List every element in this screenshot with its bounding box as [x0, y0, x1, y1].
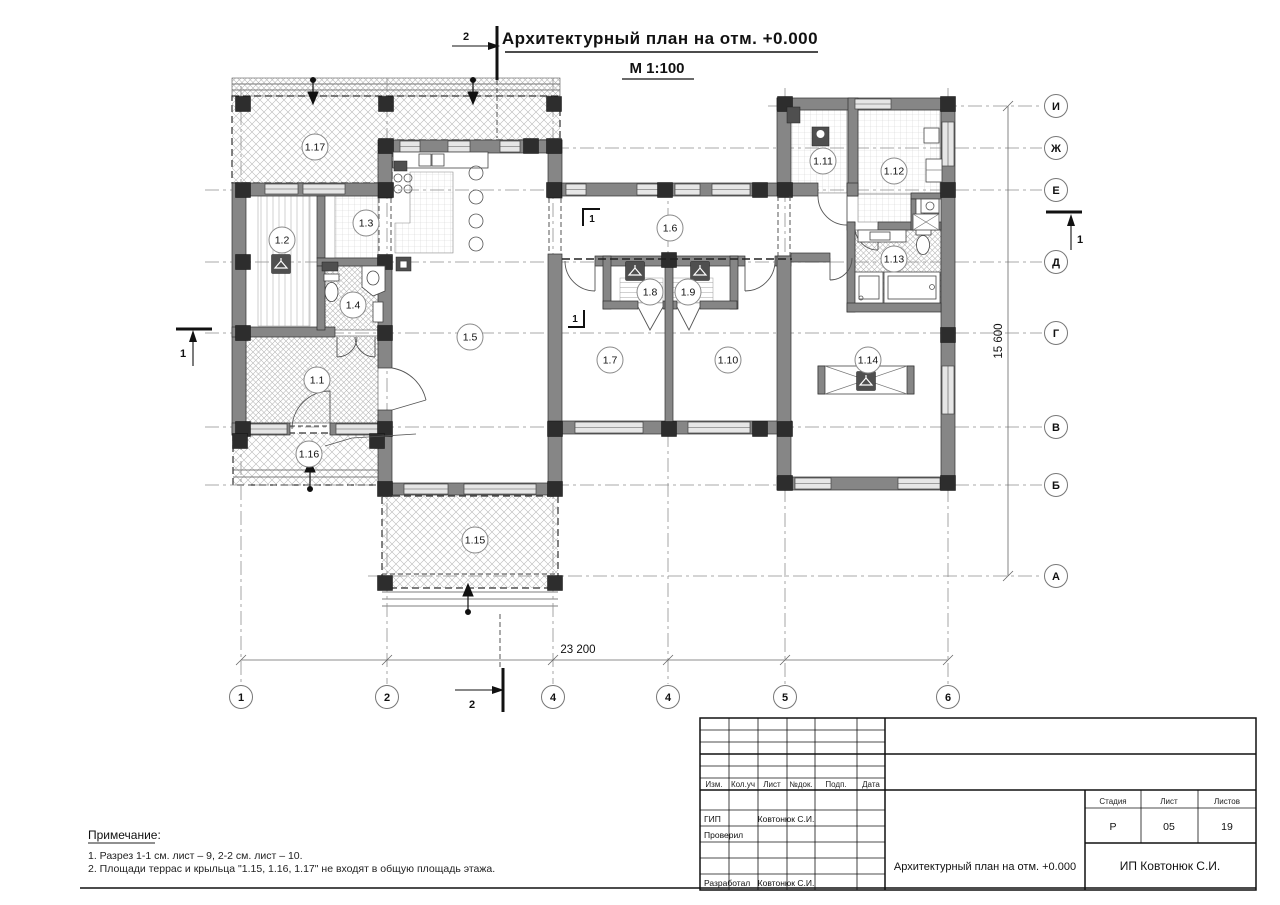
wall — [848, 98, 858, 196]
tb-doc-title: Архитектурный план на отм. +0.000 — [894, 861, 1076, 873]
column — [547, 183, 562, 198]
svg-text:1.11: 1.11 — [813, 156, 833, 168]
tb-name-razrabotal: Ковтонюк С.И. — [758, 878, 815, 888]
fixture — [469, 190, 483, 204]
note-2: 2. Площади террас и крыльца "1.15, 1.16,… — [88, 863, 495, 875]
column — [233, 434, 248, 449]
fixture — [373, 302, 383, 322]
svg-text:1.9: 1.9 — [681, 287, 696, 299]
fixture — [419, 154, 431, 166]
fixture — [924, 128, 939, 143]
title-block: Изм. Кол.уч Лист №док. Подп. Дата ГИП Ко… — [700, 718, 1256, 890]
fixture — [469, 214, 483, 228]
fixture — [926, 159, 942, 182]
wall — [847, 303, 941, 312]
hanger-icon — [857, 372, 876, 391]
notes-heading: Примечание: — [88, 828, 161, 842]
toilet-icon — [367, 271, 379, 285]
column — [548, 422, 563, 437]
svg-text:1.16: 1.16 — [299, 449, 320, 461]
fixture — [818, 366, 825, 394]
folding-door-1-8 — [638, 307, 663, 330]
column — [548, 576, 563, 591]
tb-stage-label: Стадия — [1099, 797, 1126, 806]
fixture — [400, 261, 407, 268]
svg-text:1.4: 1.4 — [346, 300, 361, 312]
column — [662, 253, 677, 268]
tb-col-koluch: Кол.уч — [731, 780, 755, 789]
wall — [791, 253, 830, 262]
svg-text:1.14: 1.14 — [858, 355, 879, 367]
hanger-icon — [691, 262, 710, 281]
tb-stage-value: Р — [1109, 821, 1116, 833]
room-1-12-floor-lower — [858, 194, 911, 222]
column — [753, 183, 768, 198]
fixture — [324, 274, 339, 281]
svg-text:И: И — [1052, 101, 1060, 113]
wall — [792, 183, 818, 196]
fixture — [870, 232, 890, 240]
column — [662, 422, 677, 437]
svg-text:1.7: 1.7 — [603, 355, 618, 367]
overall-height-dim: 15 600 — [993, 323, 1005, 358]
fixture — [859, 276, 879, 299]
hanger-icon — [272, 255, 291, 274]
wall — [847, 183, 858, 196]
overall-width-dim: 23 200 — [560, 644, 595, 656]
column — [778, 183, 793, 198]
section-1-jog-b: 1 — [572, 314, 578, 325]
column — [548, 482, 563, 497]
column — [941, 328, 956, 343]
fixture — [322, 262, 338, 271]
wall — [665, 256, 673, 434]
svg-text:Б: Б — [1052, 480, 1060, 492]
wall — [232, 183, 246, 435]
drawing-title: Архитектурный план на отм. +0.000 М 1:10… — [502, 29, 818, 79]
section-1-label-left: 1 — [180, 348, 186, 360]
column — [236, 97, 251, 112]
scale-label: М 1:100 — [629, 60, 684, 77]
floor-plan-svg: 2 2 1 1 1 1 23 200 15 600 ИЖЕДГВБА124456… — [0, 0, 1280, 905]
title-block-header-row: Изм. Кол.уч Лист №док. Подп. Дата — [705, 780, 880, 789]
column — [379, 139, 394, 154]
svg-text:Д: Д — [1052, 257, 1060, 269]
note-1: 1. Разрез 1-1 см. лист – 9, 2-2 см. лист… — [88, 850, 303, 862]
fixture — [394, 174, 402, 182]
svg-text:1.15: 1.15 — [465, 535, 486, 547]
fixture — [787, 107, 800, 123]
fixture — [921, 199, 939, 213]
tb-col-izm: Изм. — [705, 780, 722, 789]
svg-text:Ж: Ж — [1050, 143, 1061, 155]
tb-company: ИП Ковтонюк С.И. — [1120, 859, 1221, 873]
column — [378, 576, 393, 591]
column — [778, 422, 793, 437]
svg-text:1: 1 — [238, 692, 244, 704]
fixture — [394, 161, 407, 171]
tb-sheets-label: Листов — [1214, 797, 1240, 806]
page-title: Архитектурный план на отм. +0.000 — [502, 29, 818, 48]
column — [753, 422, 768, 437]
tb-name-gip: Ковтонюк С.И. — [758, 814, 815, 824]
hanger-icon — [626, 262, 645, 281]
svg-text:1.13: 1.13 — [884, 254, 905, 266]
section-1-jog-a: 1 — [589, 214, 595, 225]
svg-text:А: А — [1052, 571, 1060, 583]
svg-text:1.8: 1.8 — [643, 287, 658, 299]
column — [378, 326, 393, 341]
wall — [603, 301, 638, 309]
wall — [317, 196, 325, 258]
column — [941, 476, 956, 491]
svg-text:4: 4 — [550, 692, 557, 704]
svg-text:1.6: 1.6 — [663, 223, 678, 235]
svg-text:2: 2 — [384, 692, 390, 704]
column — [941, 97, 956, 112]
folding-door-1-9 — [677, 307, 700, 330]
svg-text:Е: Е — [1052, 185, 1059, 197]
tb-col-data: Дата — [862, 780, 880, 789]
tb-col-podp: Подп. — [825, 780, 846, 789]
svg-text:1.2: 1.2 — [275, 235, 290, 247]
fixture — [907, 366, 914, 394]
svg-text:1.17: 1.17 — [305, 142, 326, 154]
svg-text:4: 4 — [665, 692, 672, 704]
column — [778, 476, 793, 491]
svg-text:Г: Г — [1053, 328, 1060, 340]
terrace-top-steps — [232, 78, 560, 96]
toilet-icon — [917, 236, 930, 255]
column — [236, 183, 251, 198]
column — [547, 139, 562, 154]
fixture — [817, 130, 825, 138]
column — [236, 255, 251, 270]
kitchen-island — [395, 172, 453, 253]
section-1-label-right: 1 — [1077, 234, 1083, 246]
section-2-label-bottom: 2 — [469, 699, 475, 711]
fixture — [432, 154, 444, 166]
tb-sheets-value: 19 — [1221, 821, 1233, 833]
tb-sheet-label: Лист — [1160, 797, 1178, 806]
tb-col-list: Лист — [763, 780, 781, 789]
fixture — [469, 237, 483, 251]
svg-text:1.10: 1.10 — [718, 355, 739, 367]
tb-col-ndok: №док. — [789, 780, 812, 789]
notes: Примечание: 1. Разрез 1-1 см. лист – 9, … — [88, 828, 495, 875]
column — [236, 326, 251, 341]
tb-role-razrabotal: Разработал — [704, 878, 750, 888]
column — [524, 139, 539, 154]
wall — [700, 301, 737, 309]
column — [378, 482, 393, 497]
fixture — [888, 276, 936, 299]
svg-text:6: 6 — [945, 692, 951, 704]
section-2-label-top: 2 — [463, 31, 469, 43]
wall — [777, 256, 791, 490]
wall — [911, 193, 941, 199]
wall — [847, 222, 855, 312]
svg-text:1.5: 1.5 — [463, 332, 478, 344]
svg-text:1.12: 1.12 — [884, 166, 905, 178]
tb-sheet-value: 05 — [1163, 821, 1175, 833]
column — [941, 183, 956, 198]
column — [658, 183, 673, 198]
fixture — [394, 185, 402, 193]
drawing-sheet: 2 2 1 1 1 1 23 200 15 600 ИЖЕДГВБА124456… — [0, 0, 1280, 905]
column — [547, 97, 562, 112]
tb-role-gip: ГИП — [704, 814, 721, 824]
column — [379, 97, 394, 112]
toilet-icon — [325, 283, 338, 302]
svg-text:5: 5 — [782, 692, 788, 704]
svg-text:1.1: 1.1 — [310, 375, 325, 387]
wall — [548, 254, 562, 495]
svg-text:1.3: 1.3 — [359, 218, 374, 230]
tb-role-proveril: Проверил — [704, 830, 743, 840]
svg-text:В: В — [1052, 422, 1060, 434]
column — [379, 183, 394, 198]
